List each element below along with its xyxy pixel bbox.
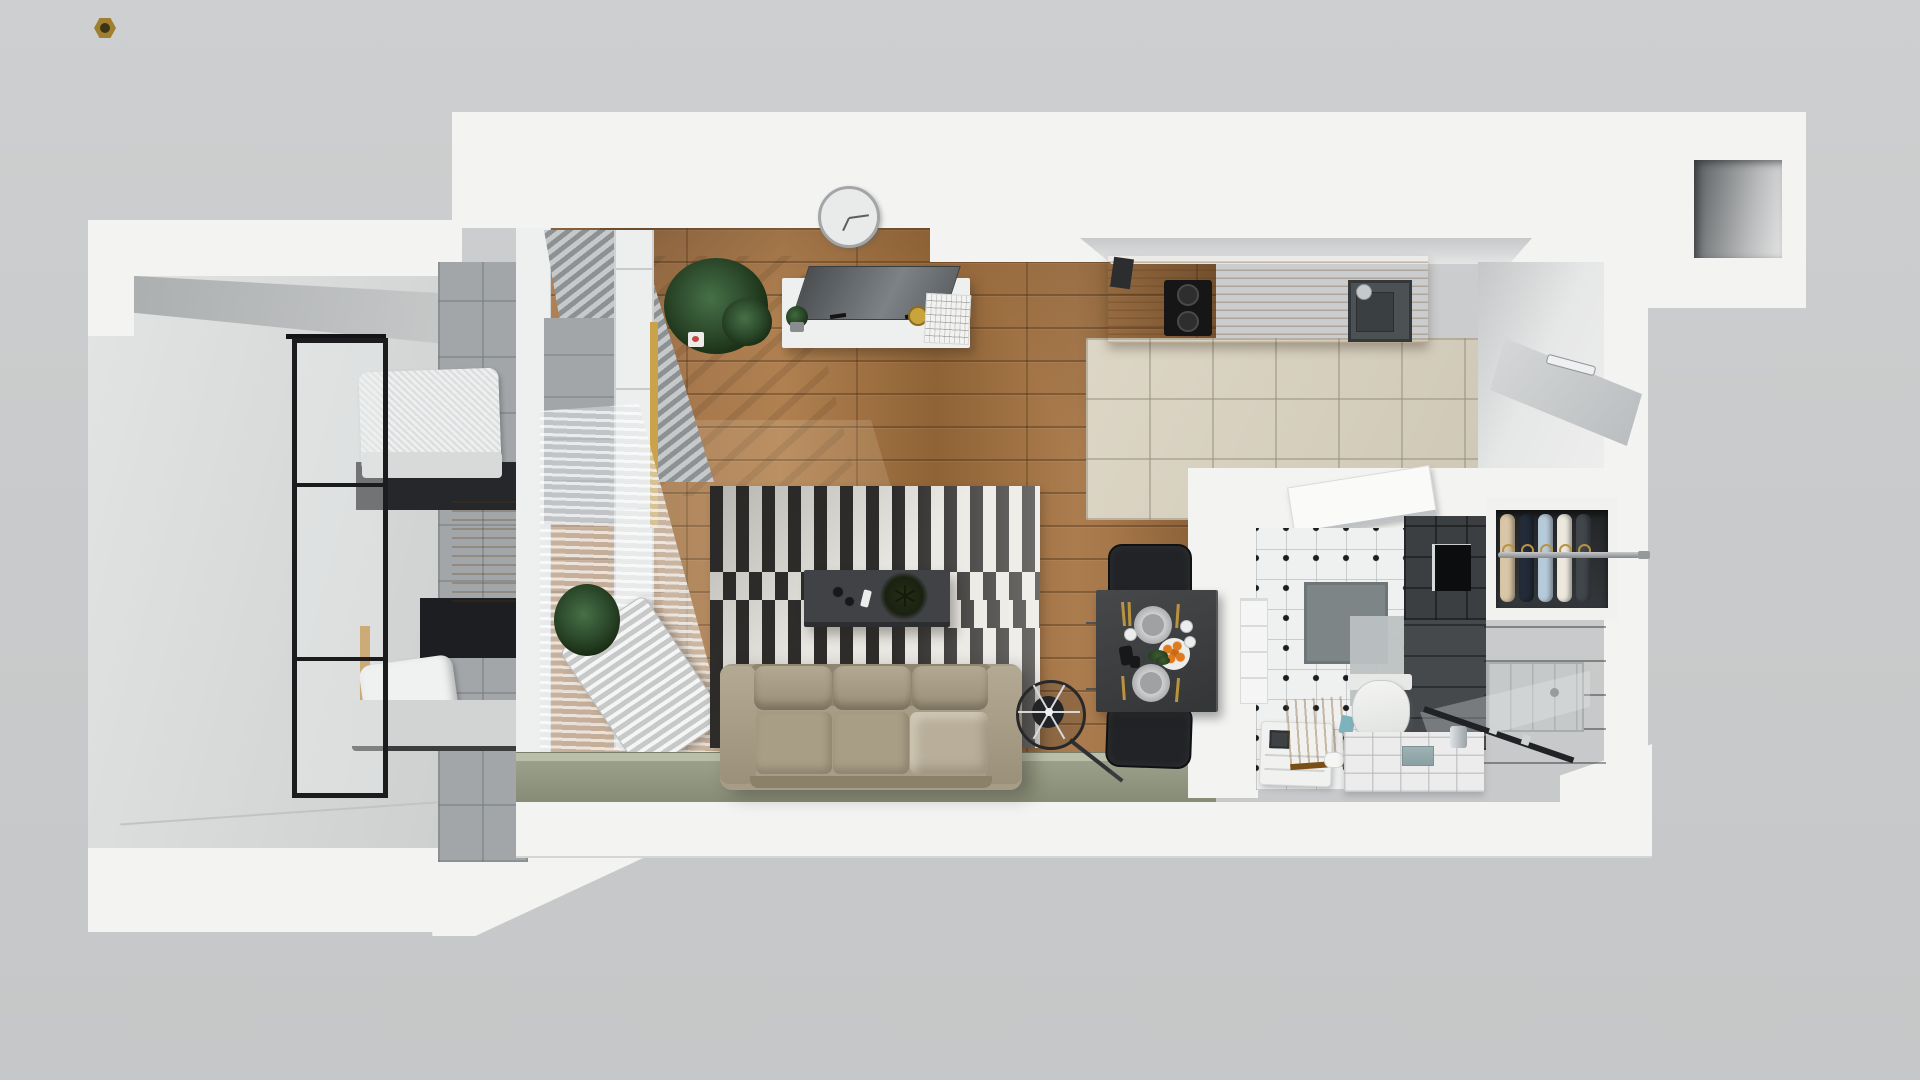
knife-icon xyxy=(1128,602,1132,626)
floorplan-render xyxy=(0,0,1920,1080)
back-cushion xyxy=(833,666,911,710)
bowl xyxy=(1140,672,1162,694)
seat-cushion xyxy=(756,712,832,774)
balcony-bottom-wall xyxy=(88,848,468,932)
palm-plant-leaf xyxy=(722,298,772,346)
dining-table xyxy=(1096,590,1218,712)
drinking-glass xyxy=(832,586,844,598)
garment-on-hanger xyxy=(1557,514,1572,602)
toilet-paper-roll xyxy=(1324,752,1344,768)
door-mullion xyxy=(297,657,383,661)
wall-clock xyxy=(818,186,880,248)
cup xyxy=(1184,636,1196,648)
detergent-drawer xyxy=(1269,730,1290,749)
cup xyxy=(1180,620,1193,633)
bottom-wall xyxy=(516,802,1652,858)
remote-control xyxy=(860,589,872,607)
table-plant xyxy=(880,572,928,620)
coffee-table xyxy=(804,570,950,627)
back-cushion xyxy=(912,666,988,710)
burner-icon xyxy=(1177,284,1199,306)
counter-appliance xyxy=(1110,257,1134,289)
garment-on-hanger xyxy=(1538,514,1553,602)
sofa-armrest xyxy=(720,666,756,784)
bed-shadow-gap xyxy=(420,598,526,658)
seat-cushion xyxy=(833,712,909,774)
hanging-clothes xyxy=(1500,514,1604,606)
condiment-jar xyxy=(1130,656,1140,668)
magazine-stack xyxy=(924,293,972,345)
cooktop-burners xyxy=(1168,284,1208,332)
fork-icon xyxy=(1121,602,1126,626)
closet-rod xyxy=(1498,552,1640,558)
bowl xyxy=(1142,614,1164,636)
entry-door-niche xyxy=(1694,160,1782,258)
platform-basin-inset xyxy=(1402,746,1434,766)
drinking-glass xyxy=(844,596,855,607)
dinner-plate xyxy=(1134,606,1172,644)
closet-rod-end xyxy=(1638,551,1650,559)
burner-icon xyxy=(1177,311,1199,333)
balcony-corner-wall xyxy=(88,220,134,336)
herb-garnish xyxy=(1156,656,1170,665)
glass-partition-door xyxy=(292,338,388,798)
door-mullion xyxy=(297,483,383,487)
cooktop xyxy=(1164,280,1212,336)
fan-hub xyxy=(1045,708,1053,716)
hexagon-planter-soil xyxy=(100,23,110,33)
back-cushion xyxy=(754,666,832,710)
sofa-front-edge xyxy=(750,776,992,788)
sofa xyxy=(720,664,1022,790)
bed-wood-cabinet xyxy=(452,496,526,602)
spoon-icon xyxy=(1175,678,1180,702)
top-wall xyxy=(452,112,972,228)
seat-cushion xyxy=(910,712,988,774)
floor-plant xyxy=(554,584,620,656)
bathroom-shelf xyxy=(1240,598,1268,704)
plant-pot-accent xyxy=(692,336,699,342)
garment-on-hanger xyxy=(1500,514,1515,602)
dinner-plate xyxy=(1132,664,1170,702)
bathroom-mirror xyxy=(1432,544,1471,591)
garment-on-hanger xyxy=(1576,514,1591,602)
fork-icon xyxy=(1121,676,1126,700)
cup xyxy=(1124,628,1137,641)
faucet xyxy=(1356,284,1372,300)
console-plant-pot xyxy=(790,322,804,332)
balcony-top-wall xyxy=(88,220,462,276)
chrome-cup xyxy=(1450,726,1467,748)
dining-chair xyxy=(1105,703,1193,770)
garment-on-hanger xyxy=(1519,514,1534,602)
